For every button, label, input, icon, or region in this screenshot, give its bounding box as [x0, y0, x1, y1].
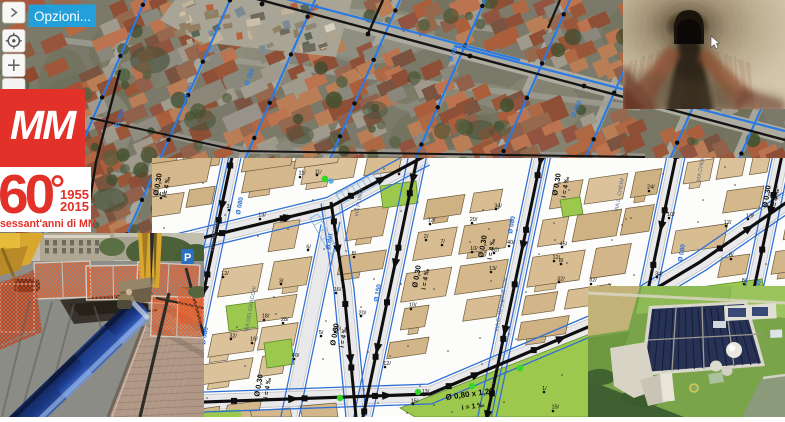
svg-text:12/: 12/: [428, 218, 436, 224]
svg-text:16/: 16/: [250, 337, 258, 343]
svg-text:20/: 20/: [470, 217, 478, 223]
svg-text:45/: 45/: [560, 241, 568, 247]
svg-text:40/: 40/: [292, 353, 300, 359]
svg-text:11/: 11/: [315, 169, 323, 175]
svg-text:12/: 12/: [383, 361, 391, 367]
svg-text:3/: 3/: [279, 278, 284, 284]
svg-text:MM: MM: [10, 102, 77, 148]
svg-text:34/: 34/: [655, 271, 663, 277]
svg-text:7/: 7/: [440, 239, 445, 245]
svg-text:32/: 32/: [492, 247, 500, 253]
svg-text:P: P: [184, 252, 191, 264]
svg-text:8/: 8/: [729, 253, 734, 259]
svg-text:10/: 10/: [470, 246, 478, 252]
svg-text:8/: 8/: [559, 258, 564, 264]
svg-text:12/: 12/: [221, 271, 229, 277]
svg-text:20/: 20/: [333, 326, 341, 332]
svg-text:15/: 15/: [411, 398, 419, 404]
svg-text:40/: 40/: [507, 240, 515, 246]
svg-text:3/: 3/: [227, 204, 232, 210]
svg-text:20/: 20/: [359, 310, 367, 316]
svg-text:5/: 5/: [319, 330, 324, 336]
svg-text:sessant'anni di MM: sessant'anni di MM: [0, 218, 97, 230]
svg-text:13/: 13/: [422, 389, 430, 395]
svg-text:12/: 12/: [724, 220, 732, 226]
svg-text:60: 60: [0, 163, 54, 225]
svg-text:10/: 10/: [409, 303, 417, 309]
svg-text:11/: 11/: [298, 171, 306, 177]
svg-text:Opzioni...: Opzioni...: [34, 9, 91, 24]
svg-text:6/: 6/: [306, 244, 311, 250]
svg-text:18/: 18/: [262, 314, 270, 320]
svg-text:16/: 16/: [334, 287, 342, 293]
svg-text:8/: 8/: [742, 278, 747, 284]
svg-text:13/: 13/: [489, 266, 497, 272]
svg-text:32/: 32/: [229, 333, 237, 339]
svg-text:10/: 10/: [667, 212, 675, 218]
svg-text:32/: 32/: [589, 278, 597, 284]
svg-text:2/: 2/: [424, 234, 429, 240]
svg-text:2015: 2015: [60, 199, 89, 214]
svg-text:1/: 1/: [542, 386, 547, 392]
svg-text:13/: 13/: [746, 213, 754, 219]
svg-text:3/: 3/: [397, 168, 402, 174]
svg-text:45/: 45/: [159, 192, 167, 198]
svg-text:28/: 28/: [281, 317, 289, 323]
svg-text:32/: 32/: [557, 276, 565, 282]
svg-text:24/: 24/: [647, 185, 655, 191]
svg-text:15/: 15/: [551, 405, 559, 411]
svg-text:34/: 34/: [494, 203, 502, 209]
svg-text:8/: 8/: [352, 251, 357, 257]
svg-text:13/: 13/: [258, 213, 266, 219]
